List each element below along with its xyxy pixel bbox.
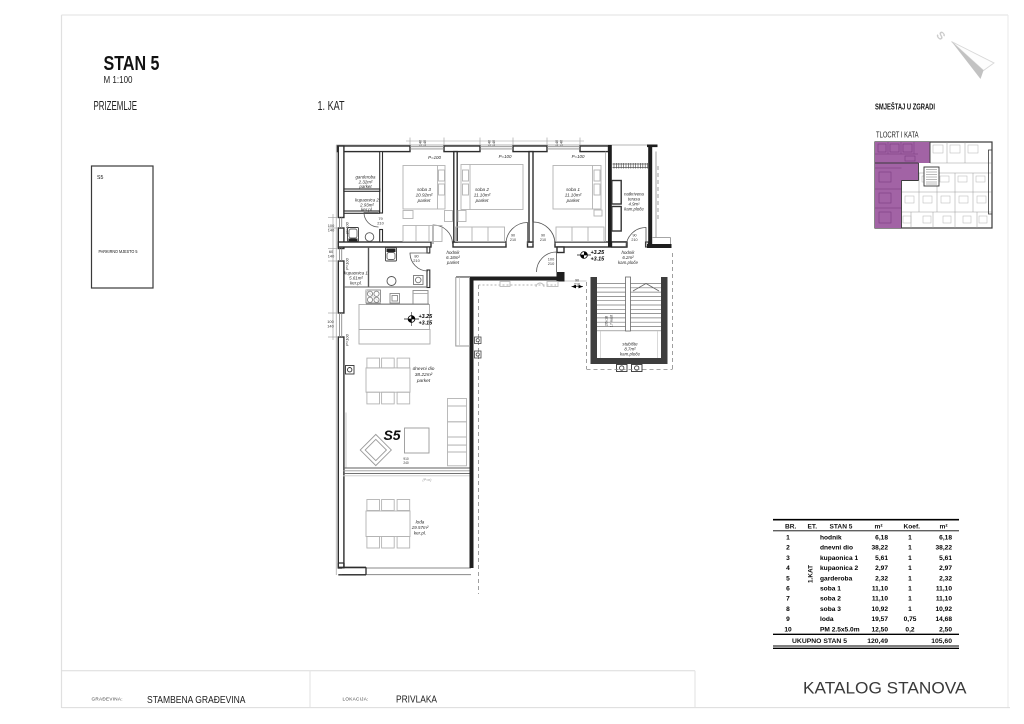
- svg-text:11,10: 11,10: [936, 596, 952, 603]
- svg-text:ker.pl.: ker.pl.: [414, 531, 426, 536]
- svg-text:7: 7: [786, 596, 790, 603]
- svg-text:26x18: 26x18: [605, 316, 609, 326]
- svg-text:+3.15: +3.15: [419, 321, 434, 327]
- svg-text:dnevni dio: dnevni dio: [820, 545, 853, 552]
- svg-text:210: 210: [377, 221, 384, 226]
- svg-text:0,75: 0,75: [904, 616, 917, 623]
- svg-text:19.57m²: 19.57m²: [412, 525, 429, 530]
- svg-text:+3.15: +3.15: [591, 257, 606, 263]
- svg-text:210: 210: [510, 238, 516, 242]
- svg-text:soba 1: soba 1: [820, 586, 841, 593]
- svg-text:dnevni dio: dnevni dio: [413, 366, 435, 372]
- svg-text:parket: parket: [417, 198, 431, 203]
- svg-text:hodnik: hodnik: [820, 535, 842, 542]
- svg-text:0,2: 0,2: [905, 626, 914, 633]
- svg-text:12,50: 12,50: [871, 626, 888, 633]
- svg-text:PARKIRNO MJESTO 5: PARKIRNO MJESTO 5: [99, 249, 139, 254]
- svg-text:parket: parket: [475, 198, 489, 203]
- svg-text:140: 140: [328, 254, 335, 259]
- svg-text:TLOCRT I KATA: TLOCRT I KATA: [876, 131, 919, 140]
- svg-text:210: 210: [574, 283, 580, 287]
- svg-text:m²: m²: [940, 524, 949, 531]
- svg-text:(P=n): (P=n): [423, 478, 432, 482]
- svg-text:P=100: P=100: [345, 257, 350, 269]
- svg-text:+3.25: +3.25: [419, 314, 434, 320]
- svg-text:STAN 5: STAN 5: [830, 524, 853, 531]
- svg-text:soba 1: soba 1: [566, 187, 580, 192]
- svg-text:90: 90: [541, 234, 545, 238]
- svg-text:2,32: 2,32: [939, 575, 952, 582]
- svg-text:140: 140: [555, 140, 559, 146]
- svg-text:10: 10: [784, 626, 792, 633]
- svg-text:1: 1: [908, 535, 912, 542]
- svg-text:2,97: 2,97: [875, 565, 888, 572]
- svg-text:210: 210: [548, 261, 555, 266]
- svg-text:kam.ploče: kam.ploče: [618, 260, 639, 265]
- svg-text:11,10: 11,10: [872, 586, 888, 593]
- svg-text:1: 1: [908, 565, 912, 572]
- svg-text:8: 8: [786, 606, 790, 613]
- svg-text:1: 1: [908, 606, 912, 613]
- svg-text:9: 9: [786, 616, 790, 623]
- svg-text:17 nast: 17 nast: [610, 314, 614, 327]
- svg-text:140: 140: [488, 140, 492, 146]
- svg-text:KATALOG STANOVA: KATALOG STANOVA: [803, 680, 967, 698]
- svg-text:S5: S5: [97, 175, 103, 181]
- svg-text:PRIVLAKA: PRIVLAKA: [396, 693, 437, 705]
- svg-text:1: 1: [908, 586, 912, 593]
- svg-text:STAN 5: STAN 5: [104, 52, 160, 75]
- svg-text:S5: S5: [383, 427, 400, 443]
- svg-text:11.10m²: 11.10m²: [474, 193, 491, 198]
- svg-text:10,92: 10,92: [871, 606, 888, 613]
- svg-text:19,57: 19,57: [871, 616, 888, 623]
- svg-text:6,18: 6,18: [875, 535, 888, 542]
- svg-text:140: 140: [423, 140, 427, 146]
- svg-text:parket: parket: [566, 198, 580, 203]
- svg-text:140: 140: [492, 140, 496, 146]
- svg-text:140: 140: [560, 140, 564, 146]
- svg-text:kam.ploče: kam.ploče: [624, 207, 644, 212]
- svg-text:P=100: P=100: [345, 221, 350, 233]
- svg-text:140: 140: [419, 140, 423, 146]
- svg-text:parket: parket: [358, 184, 372, 189]
- svg-text:PM 2.5x5.0m: PM 2.5x5.0m: [820, 626, 860, 633]
- svg-text:BR.: BR.: [785, 524, 797, 531]
- svg-text:1. KAT: 1. KAT: [318, 99, 345, 113]
- svg-text:1: 1: [908, 545, 912, 552]
- svg-text:LOKACIJA:: LOKACIJA:: [343, 697, 369, 702]
- svg-text:10,92: 10,92: [935, 606, 952, 613]
- svg-text:lođa: lođa: [416, 520, 425, 525]
- svg-text:kupaonica 2: kupaonica 2: [820, 565, 858, 572]
- svg-text:2,32: 2,32: [875, 575, 888, 582]
- svg-text:5,61: 5,61: [875, 555, 888, 562]
- svg-text:5: 5: [786, 575, 790, 582]
- svg-text:ET.: ET.: [808, 524, 818, 531]
- svg-text:1: 1: [908, 596, 912, 603]
- svg-text:210: 210: [631, 238, 637, 242]
- svg-text:Koef.: Koef.: [904, 524, 921, 531]
- svg-text:3: 3: [786, 555, 790, 562]
- svg-text:6,18: 6,18: [939, 535, 952, 542]
- svg-text:10.92m²: 10.92m²: [416, 193, 433, 198]
- svg-text:2: 2: [786, 545, 790, 552]
- svg-text:M 1:100: M 1:100: [104, 75, 133, 86]
- svg-text:210: 210: [540, 238, 546, 242]
- svg-text:140: 140: [327, 324, 334, 329]
- svg-text:kam.ploče: kam.ploče: [620, 352, 641, 357]
- svg-text:90: 90: [511, 234, 515, 238]
- svg-text:soba 3: soba 3: [820, 606, 841, 613]
- svg-text:UKUPNO STAN 5: UKUPNO STAN 5: [792, 638, 847, 645]
- svg-text:4: 4: [786, 565, 790, 572]
- svg-text:STAMBENA GRAĐEVINA: STAMBENA GRAĐEVINA: [147, 694, 246, 706]
- svg-text:PRIZEMLJE: PRIZEMLJE: [94, 99, 138, 113]
- svg-text:2,97: 2,97: [939, 565, 952, 572]
- svg-text:1: 1: [786, 535, 790, 542]
- svg-text:14,68: 14,68: [935, 616, 952, 623]
- svg-text:1: 1: [908, 575, 912, 582]
- svg-text:garderoba: garderoba: [820, 575, 853, 582]
- svg-text:210: 210: [413, 258, 420, 263]
- svg-text:ker.pl.: ker.pl.: [350, 281, 362, 286]
- svg-text:90: 90: [632, 234, 636, 238]
- svg-text:105,60: 105,60: [931, 638, 952, 645]
- svg-text:soba 3: soba 3: [417, 187, 431, 192]
- svg-text:kupaonica 1: kupaonica 1: [820, 555, 858, 562]
- svg-text:P=100: P=100: [428, 155, 441, 160]
- svg-text:38,22: 38,22: [935, 545, 952, 552]
- svg-text:140: 140: [328, 228, 335, 233]
- svg-text:1.KAT: 1.KAT: [808, 565, 815, 583]
- svg-text:m²: m²: [875, 524, 884, 531]
- svg-text:ker.pl.: ker.pl.: [361, 207, 373, 212]
- svg-text:5,61: 5,61: [939, 555, 952, 562]
- svg-text:240: 240: [403, 461, 409, 465]
- svg-text:parket: parket: [446, 260, 460, 265]
- svg-text:SMJEŠTAJ U ZGRADI: SMJEŠTAJ U ZGRADI: [875, 101, 935, 112]
- svg-text:6: 6: [786, 586, 790, 593]
- svg-text:11.10m²: 11.10m²: [565, 193, 582, 198]
- svg-text:parket: parket: [416, 378, 431, 384]
- svg-text:38,22: 38,22: [871, 545, 888, 552]
- svg-text:P=100: P=100: [499, 154, 512, 159]
- svg-text:11,10: 11,10: [936, 586, 952, 593]
- svg-text:loda: loda: [820, 616, 834, 623]
- svg-text:+3.25: +3.25: [591, 250, 606, 256]
- svg-text:soba 2: soba 2: [475, 187, 489, 192]
- svg-text:1: 1: [908, 555, 912, 562]
- svg-text:2,50: 2,50: [939, 626, 952, 633]
- svg-text:120,49: 120,49: [867, 638, 888, 645]
- svg-text:11,10: 11,10: [872, 596, 888, 603]
- svg-text:GRAĐEVINA:: GRAĐEVINA:: [92, 697, 123, 702]
- svg-text:38.22m²: 38.22m²: [415, 372, 433, 378]
- svg-text:P=100: P=100: [572, 154, 585, 159]
- svg-text:soba 2: soba 2: [820, 596, 841, 603]
- svg-text:P=100: P=100: [345, 333, 350, 345]
